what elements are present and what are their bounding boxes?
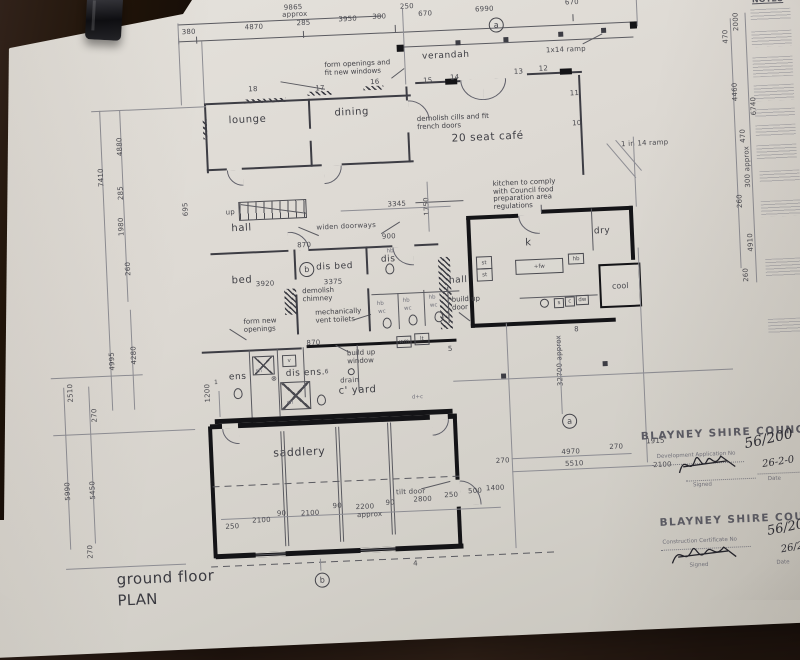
dim: 260 xyxy=(124,262,133,276)
dim: 4870 xyxy=(244,23,263,32)
dim-overall-approx: approx xyxy=(282,10,308,19)
floor-waste-label: +fw xyxy=(534,263,545,269)
room-label-hall-front: hall xyxy=(231,222,252,234)
extension-line xyxy=(53,429,195,436)
extension-line xyxy=(91,106,206,112)
dim: 2510 xyxy=(66,384,75,403)
verandah-post xyxy=(503,37,508,42)
sink-symbol xyxy=(540,299,549,308)
window-number: 6 xyxy=(325,368,329,375)
grid-marker-b-mid: b xyxy=(299,262,315,278)
dim-tick xyxy=(196,37,197,44)
leader-line xyxy=(459,312,471,321)
extension-line xyxy=(201,41,205,103)
stamp-construction-date: 26/2/ xyxy=(780,540,800,556)
verandah-post xyxy=(455,40,460,45)
window-number: 5 xyxy=(448,345,453,353)
door-swing xyxy=(227,170,244,187)
notes-paragraph xyxy=(755,124,795,138)
stamp-date-label: Date xyxy=(776,559,789,566)
kitchen-island: +fw xyxy=(515,258,564,275)
hand-basin-label: hb xyxy=(377,301,384,307)
hand-basin-label: hb xyxy=(386,248,393,254)
post xyxy=(501,373,506,378)
notes-paragraph xyxy=(751,30,792,48)
door-swing xyxy=(222,428,240,445)
toilet-pan xyxy=(408,314,417,325)
stamp-date-label: Date xyxy=(768,476,781,483)
window xyxy=(203,119,208,139)
store-cupboard: st xyxy=(476,268,493,282)
dim: 90 xyxy=(332,502,342,510)
extension-line xyxy=(51,374,143,379)
toilet-pan xyxy=(317,394,326,405)
wall xyxy=(365,246,368,274)
wall xyxy=(527,71,582,75)
dim-tick xyxy=(395,25,396,32)
cool-room: cool xyxy=(598,262,642,308)
grid-marker-a-top: a xyxy=(488,17,504,33)
dim: 380 xyxy=(182,28,196,37)
vanity-unit: v xyxy=(282,355,297,368)
window-number: 15 xyxy=(423,76,433,84)
grid-marker-a-mid: a xyxy=(562,413,578,429)
room-label-dis-ens: dis ens. xyxy=(286,367,326,379)
dim: 2800 xyxy=(413,495,432,504)
toilet-pan xyxy=(385,263,394,274)
dim: 285 xyxy=(296,19,310,28)
window-16 xyxy=(363,86,383,91)
hand-basin-label: hb xyxy=(428,294,435,300)
dim: 5450 xyxy=(88,481,97,500)
stamp-dotted-line xyxy=(758,470,800,474)
dim: 2000 xyxy=(731,12,740,31)
grid-marker-b-bottom: b xyxy=(314,572,330,588)
dim: 285 xyxy=(116,186,125,200)
dim: 4995 xyxy=(108,352,117,371)
wall-block xyxy=(560,68,572,75)
dim: 670 xyxy=(565,0,579,7)
note-form-openings: form openings and fit new windows xyxy=(324,59,395,77)
wall-new xyxy=(466,218,475,328)
dim: 470 xyxy=(721,29,730,43)
door-swing xyxy=(324,165,343,184)
drawing-sheet: 9865 approx 380 4870 285 3950 380 250 67… xyxy=(0,0,800,660)
wall-new xyxy=(466,214,518,220)
dim-approx: approx xyxy=(357,510,383,519)
wall xyxy=(242,164,322,169)
dim: 270 xyxy=(609,442,623,451)
dim: 4280 xyxy=(129,346,138,365)
wall xyxy=(405,86,408,100)
door-swing xyxy=(518,215,540,235)
photo-of-floor-plan: { "photo": { "surface": "dark wood table… xyxy=(0,0,800,600)
wall xyxy=(310,141,313,167)
wall-new xyxy=(307,339,457,349)
french-door-swing xyxy=(483,78,507,100)
dim: 260 xyxy=(735,194,744,208)
dim: 90 xyxy=(277,509,287,517)
room-label-lounge: lounge xyxy=(228,114,266,127)
dim: 1400 xyxy=(486,484,505,493)
dim: 470 xyxy=(739,129,748,143)
wall xyxy=(210,250,288,255)
dim: 1200 xyxy=(203,384,212,403)
french-door-swing xyxy=(460,79,484,101)
dim: 4880 xyxy=(115,137,124,156)
dim: 500 xyxy=(468,487,482,496)
verandah-post xyxy=(558,32,563,37)
wall xyxy=(308,99,311,129)
shower-tray xyxy=(280,381,311,410)
wall xyxy=(407,132,410,162)
stall-partition xyxy=(397,293,400,329)
note-ramp-right: 1 in 14 ramp xyxy=(621,138,669,148)
dim: 870 xyxy=(297,241,311,250)
dim: 3920 xyxy=(256,279,275,288)
cooker-unit: c xyxy=(565,296,575,306)
dim: 380 xyxy=(372,12,386,21)
site-line xyxy=(506,323,517,548)
wall-new xyxy=(208,426,218,558)
dim: 4460 xyxy=(731,82,740,101)
note-kitchen-regulations: kitchen to comply with Council food prep… xyxy=(493,178,560,211)
notes-paragraph xyxy=(765,257,800,277)
notes-paragraph xyxy=(761,199,800,217)
dim: 7410 xyxy=(97,168,106,187)
wall-new xyxy=(629,206,635,260)
shower-label: sh xyxy=(256,368,263,374)
window-number: 4 xyxy=(413,559,418,567)
dim: 900 xyxy=(382,232,396,241)
window-number: 1 xyxy=(214,379,218,386)
note-widen-doorways: widen doorways xyxy=(316,221,376,232)
sink-unit: s xyxy=(554,298,564,308)
dim-tick xyxy=(303,31,304,38)
dim: 5990 xyxy=(63,482,72,501)
toilet-pan xyxy=(233,388,242,399)
dim: 270 xyxy=(496,456,510,465)
washing-machine: wm xyxy=(396,336,412,349)
dim: 5510 xyxy=(565,459,584,468)
window-number: 16 xyxy=(370,78,380,86)
wall xyxy=(207,168,227,171)
stall-partition xyxy=(423,290,426,326)
dim: 270 xyxy=(90,408,99,422)
wall-new xyxy=(471,318,616,328)
window-number: 14 xyxy=(450,73,460,81)
note-form-new-openings: form new openings xyxy=(243,317,290,334)
site-line xyxy=(453,369,733,382)
dim: 250 xyxy=(444,491,458,500)
room-label-dining: dining xyxy=(334,106,369,118)
dim: 4970 xyxy=(561,447,580,456)
corner-post xyxy=(397,45,404,52)
floor-waste-symbol: ⊗ xyxy=(271,374,277,382)
wc-label: wc xyxy=(378,309,386,315)
note-build-up-door: build up door xyxy=(452,295,491,312)
notes-paragraph xyxy=(755,108,795,119)
drain-symbol xyxy=(348,368,355,375)
stamp-development-date: 26-2-0 xyxy=(761,454,794,470)
notes-heading: NOTES xyxy=(752,0,784,4)
dim: 1980 xyxy=(117,217,126,236)
wall-new xyxy=(453,414,460,480)
dim: 260 xyxy=(742,268,751,282)
hand-basin-label: hb xyxy=(403,298,410,304)
wall xyxy=(295,294,299,334)
verandah-edge xyxy=(402,37,634,48)
dim: 3345 xyxy=(387,200,406,209)
wall xyxy=(414,243,438,246)
shower-label: sh xyxy=(287,400,294,406)
room-label-bed: bed xyxy=(231,274,252,286)
wall xyxy=(293,250,296,280)
drawing-title-line1: ground floor xyxy=(116,566,215,588)
window-18 xyxy=(244,98,286,104)
dim-line xyxy=(730,18,742,268)
dim: 695 xyxy=(181,202,190,216)
notes-paragraph xyxy=(756,144,797,160)
note-demolish-cills: demolish cills and fit french doors xyxy=(417,113,492,131)
notes-paragraph xyxy=(754,84,795,102)
notes-paragraph xyxy=(752,56,793,78)
window-number: 12 xyxy=(539,64,549,72)
notes-paragraph xyxy=(759,169,799,183)
toilet-pan xyxy=(434,311,443,322)
dim: 670 xyxy=(418,9,432,18)
dim-line xyxy=(63,388,71,550)
wall xyxy=(342,160,414,165)
window-number: 11 xyxy=(570,89,580,97)
stairs-up-label: up xyxy=(226,208,236,216)
window-number: 8 xyxy=(574,325,579,333)
note-build-up-window: build up window xyxy=(347,348,396,365)
notes-paragraph xyxy=(750,8,790,22)
room-label-cool: cool xyxy=(612,281,629,291)
dim: 3950 xyxy=(338,15,357,24)
note-ramp-top: 1x14 ramp xyxy=(546,45,586,55)
corner-post xyxy=(630,21,637,28)
room-label-dis-bed: dis bed xyxy=(316,261,353,273)
note-demolish-chimney: demolish chimney xyxy=(302,287,343,304)
dc-label: d+c xyxy=(412,394,423,400)
wc-label: wc xyxy=(430,302,438,308)
notes-paragraph xyxy=(768,317,800,333)
binder-clip xyxy=(85,0,123,41)
stamp-signed-label: Signed xyxy=(693,482,712,489)
wall-new xyxy=(457,507,463,545)
window-number: 18 xyxy=(248,85,258,93)
room-label-kitchen: k xyxy=(525,237,532,248)
stamp-signed-label: Signed xyxy=(689,562,708,569)
dim: 4910 xyxy=(746,233,755,252)
room-label-dry: dry xyxy=(594,226,611,237)
signature xyxy=(674,446,739,479)
dim: 270 xyxy=(86,545,95,559)
door-swing xyxy=(432,419,450,436)
laundry-tub: lt xyxy=(414,333,430,346)
wall xyxy=(202,347,302,353)
note-drain: drain xyxy=(340,376,359,385)
post xyxy=(603,361,608,366)
dim: 6740 xyxy=(749,97,758,116)
room-label-cafe: 20 seat café xyxy=(451,129,524,144)
room-label-ens: ens xyxy=(229,372,247,383)
dim: 2100 xyxy=(252,516,271,525)
hand-basin: hb xyxy=(568,253,584,265)
dim-line xyxy=(218,391,220,417)
toilet-pan xyxy=(382,317,391,328)
staircase xyxy=(238,199,307,221)
dim: 250 xyxy=(225,522,239,531)
window-number: 10 xyxy=(572,119,582,127)
leader-line xyxy=(421,481,450,489)
room-label-hall-rear: hall xyxy=(449,275,468,286)
dim: 90 xyxy=(385,498,395,506)
dim: 6990 xyxy=(475,5,494,14)
dim: 870 xyxy=(306,339,320,348)
dim-tick xyxy=(572,14,573,21)
dishwasher-unit: dw xyxy=(576,295,589,306)
wc-label: wc xyxy=(404,305,412,311)
room-label-verandah: verandah xyxy=(422,50,470,62)
marker-line xyxy=(320,559,322,571)
wall xyxy=(308,245,392,251)
dim: 2100 xyxy=(301,509,320,518)
window-number: 13 xyxy=(514,67,524,75)
